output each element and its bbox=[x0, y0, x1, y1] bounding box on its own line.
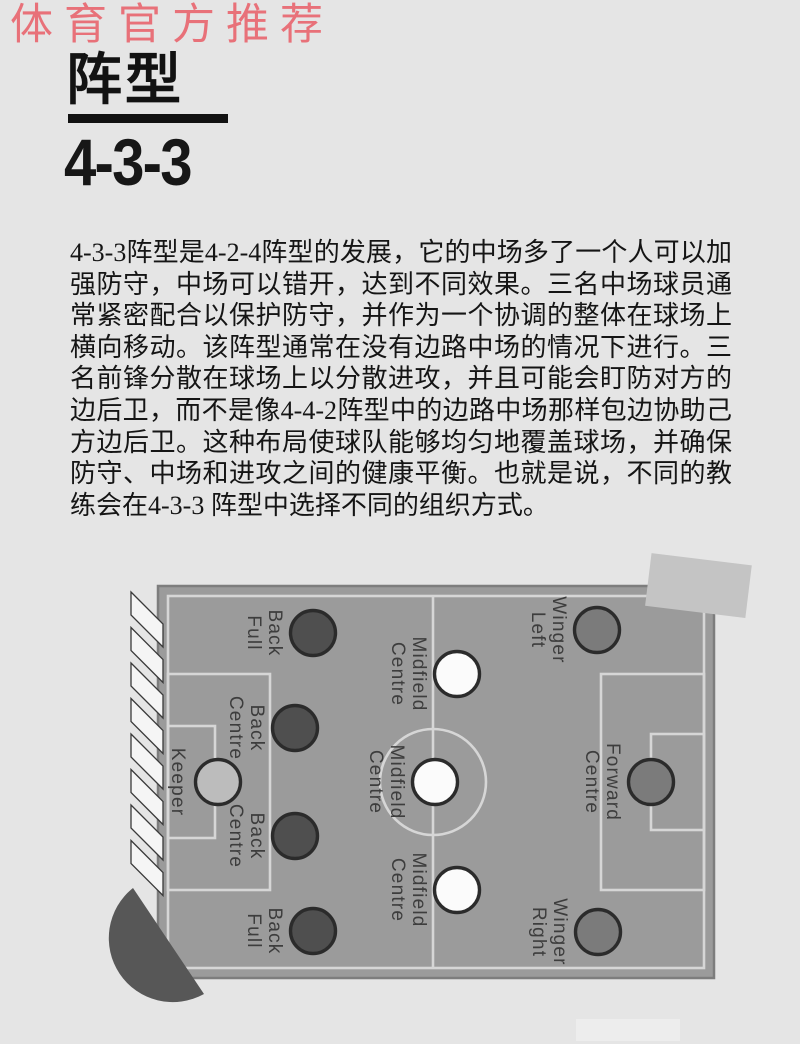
player-label-full-back-bottom-line2: Back bbox=[264, 907, 285, 954]
player-marker-centre-forward bbox=[629, 760, 674, 805]
infographic-page: 体育官方推荐 阵型 4-3-3 4-3-3阵型是4-2-4阵型的发展，它的中场多… bbox=[0, 0, 800, 1044]
player-label-centre-back-bottom-line2: Back bbox=[246, 812, 267, 859]
faint-rect-decoration bbox=[576, 1019, 680, 1041]
player-marker-centre-midfield-top bbox=[435, 652, 480, 697]
player-label-centre-midfield-bot-line2: Midfield bbox=[408, 852, 429, 927]
player-label-centre-back-top-line2: Back bbox=[246, 704, 267, 751]
player-label-right-winger-line2: Winger bbox=[549, 898, 570, 965]
player-label-left-winger-line2: Winger bbox=[548, 596, 569, 663]
player-label-centre-midfield-bot-line1: Centre bbox=[387, 858, 408, 922]
player-label-centre-forward-line1: Centre bbox=[581, 750, 602, 814]
player-marker-centre-midfield-mid bbox=[413, 760, 458, 805]
player-label-right-winger-line1: Right bbox=[528, 907, 549, 957]
player-label-centre-back-top-line1: Centre bbox=[225, 696, 246, 760]
player-label-left-winger-line1: Left bbox=[527, 612, 548, 649]
player-label-centre-midfield-mid-line1: Centre bbox=[365, 750, 386, 814]
player-label-centre-midfield-mid-line2: Midfield bbox=[386, 744, 407, 819]
formation-pitch: KeeperFullBackCentreBackCentreBackFullBa… bbox=[0, 0, 800, 1044]
player-label-centre-forward-line2: Forward bbox=[602, 743, 623, 821]
player-marker-centre-midfield-bot bbox=[435, 868, 480, 913]
player-marker-keeper bbox=[196, 760, 241, 805]
player-label-centre-back-bottom-line1: Centre bbox=[225, 804, 246, 868]
player-marker-centre-back-top bbox=[273, 706, 318, 751]
player-label-full-back-top-line2: Back bbox=[264, 609, 285, 656]
player-marker-left-winger bbox=[575, 608, 620, 653]
player-label-centre-midfield-top-line1: Centre bbox=[387, 642, 408, 706]
player-marker-centre-back-bottom bbox=[273, 814, 318, 859]
hatch-strip-decoration bbox=[131, 592, 163, 896]
player-marker-full-back-top bbox=[291, 611, 336, 656]
player-marker-right-winger bbox=[576, 910, 621, 955]
player-marker-full-back-bottom bbox=[291, 909, 336, 954]
player-label-keeper-line1: Keeper bbox=[167, 748, 188, 816]
player-label-full-back-bottom-line1: Full bbox=[243, 913, 264, 948]
player-label-centre-midfield-top-line2: Midfield bbox=[408, 636, 429, 711]
player-label-full-back-top-line1: Full bbox=[243, 615, 264, 650]
